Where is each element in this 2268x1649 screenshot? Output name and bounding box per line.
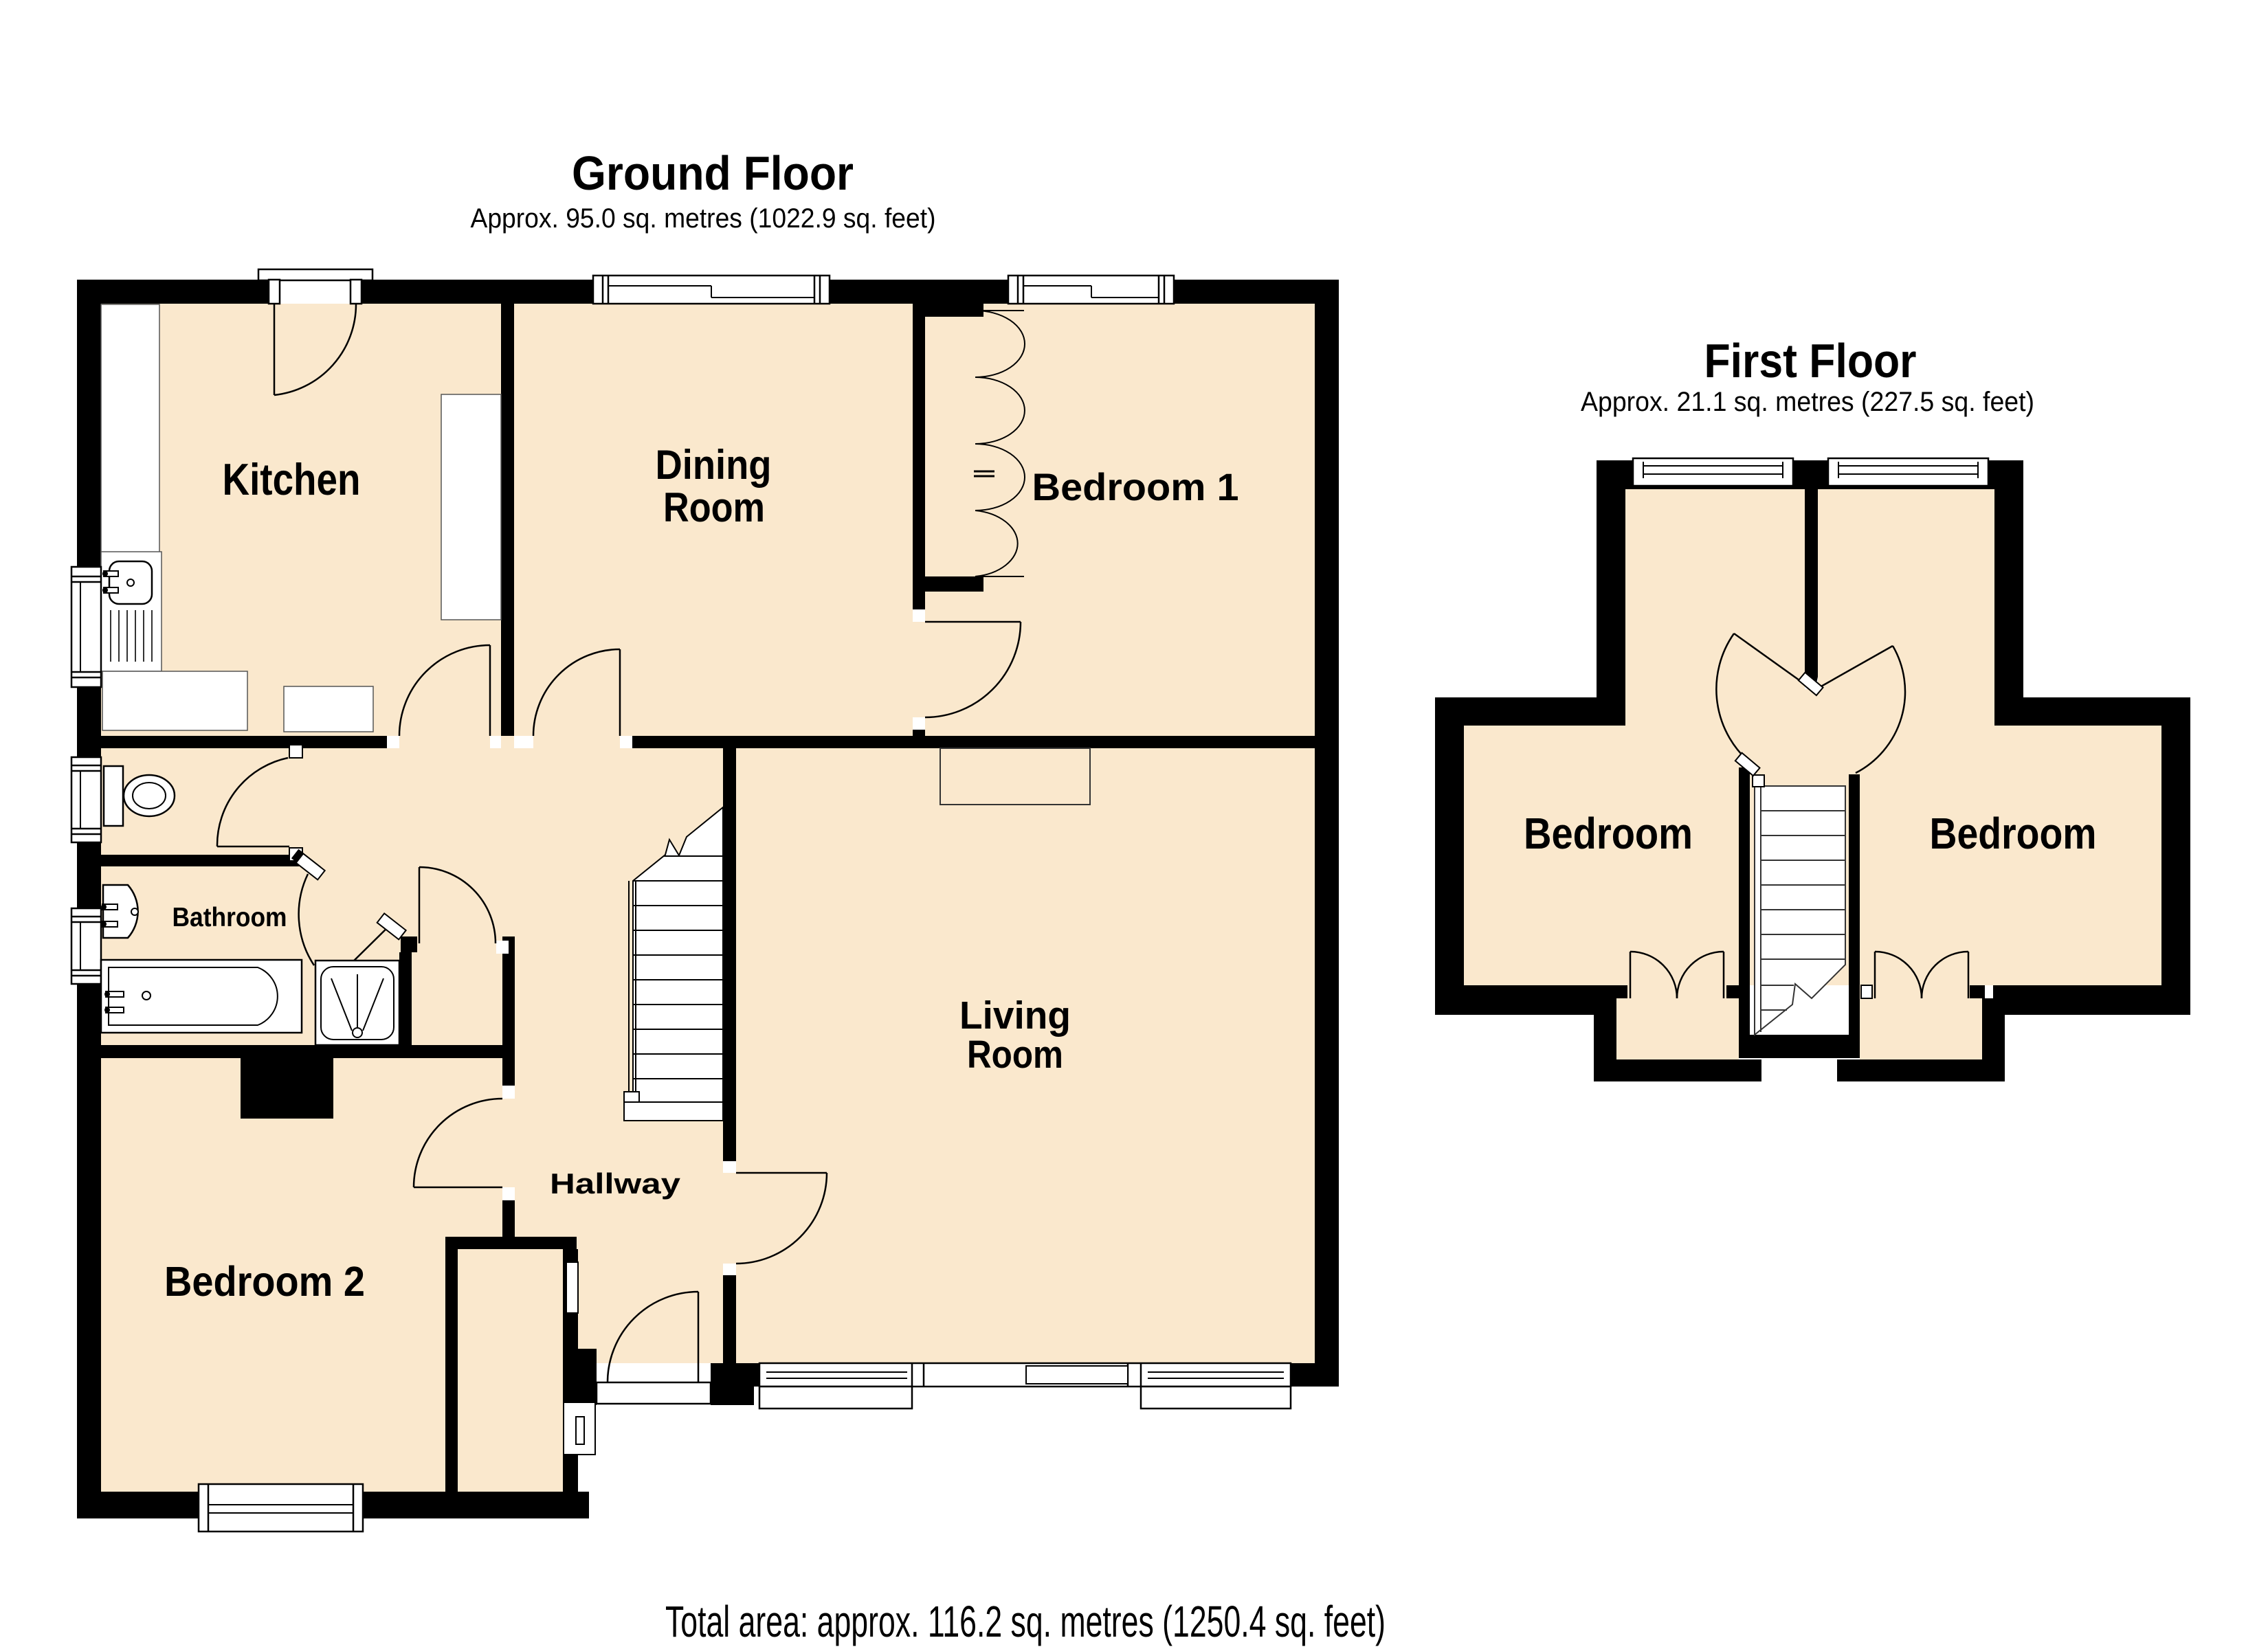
svg-text:Approx. 21.1 sq. metres (227.5: Approx. 21.1 sq. metres (227.5 sq. feet) [1581,387,2034,417]
svg-text:Approx. 95.0 sq. metres (1022.: Approx. 95.0 sq. metres (1022.9 sq. feet… [471,203,936,234]
svg-text:Ground Floor: Ground Floor [572,146,854,200]
svg-text:Hallway: Hallway [550,1167,681,1200]
svg-text:Total area: approx. 116.2 sq.: Total area: approx. 116.2 sq. metres (12… [665,1597,1386,1646]
svg-text:Dining: Dining [656,442,772,488]
svg-text:Room: Room [967,1033,1063,1077]
svg-text:Bathroom: Bathroom [173,903,287,932]
svg-text:Bedroom: Bedroom [1930,809,2097,858]
svg-text:First Floor: First Floor [1704,334,1917,388]
svg-text:Living: Living [959,994,1071,1037]
svg-text:Kitchen: Kitchen [223,454,361,504]
svg-text:Bedroom: Bedroom [1524,809,1693,858]
svg-text:Room: Room [663,484,765,530]
svg-text:Bedroom 1: Bedroom 1 [1032,465,1239,508]
svg-text:Bedroom 2: Bedroom 2 [164,1258,365,1305]
